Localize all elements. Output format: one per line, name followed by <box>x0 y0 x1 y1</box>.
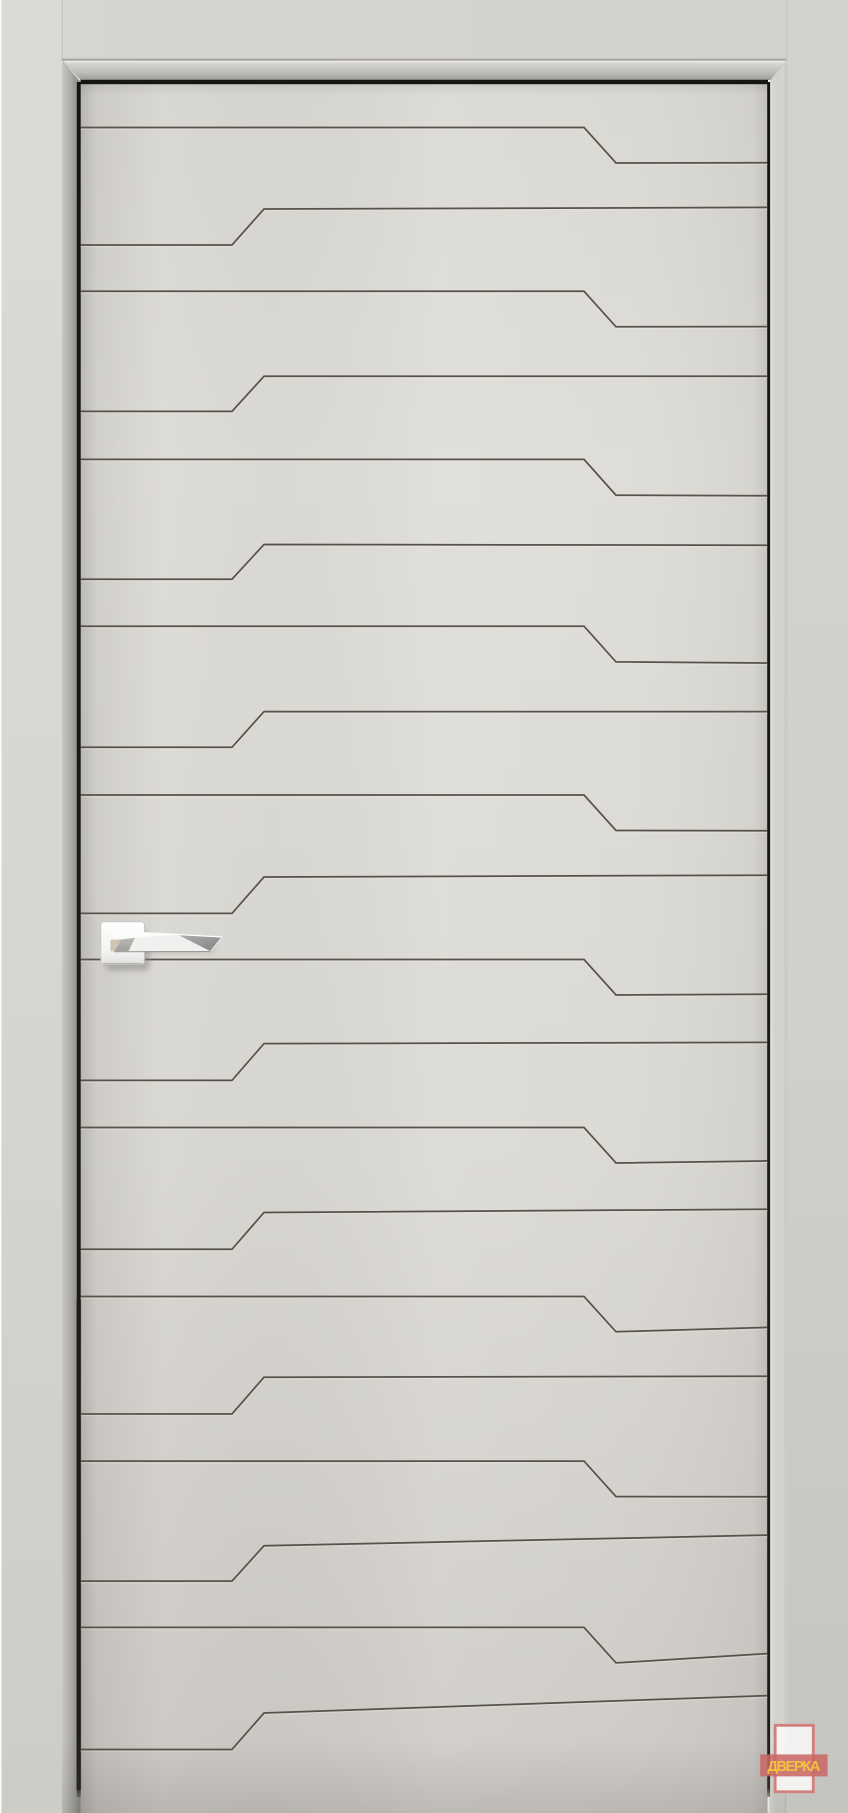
svg-text:ДВЕРКА: ДВЕРКА <box>767 1759 820 1775</box>
